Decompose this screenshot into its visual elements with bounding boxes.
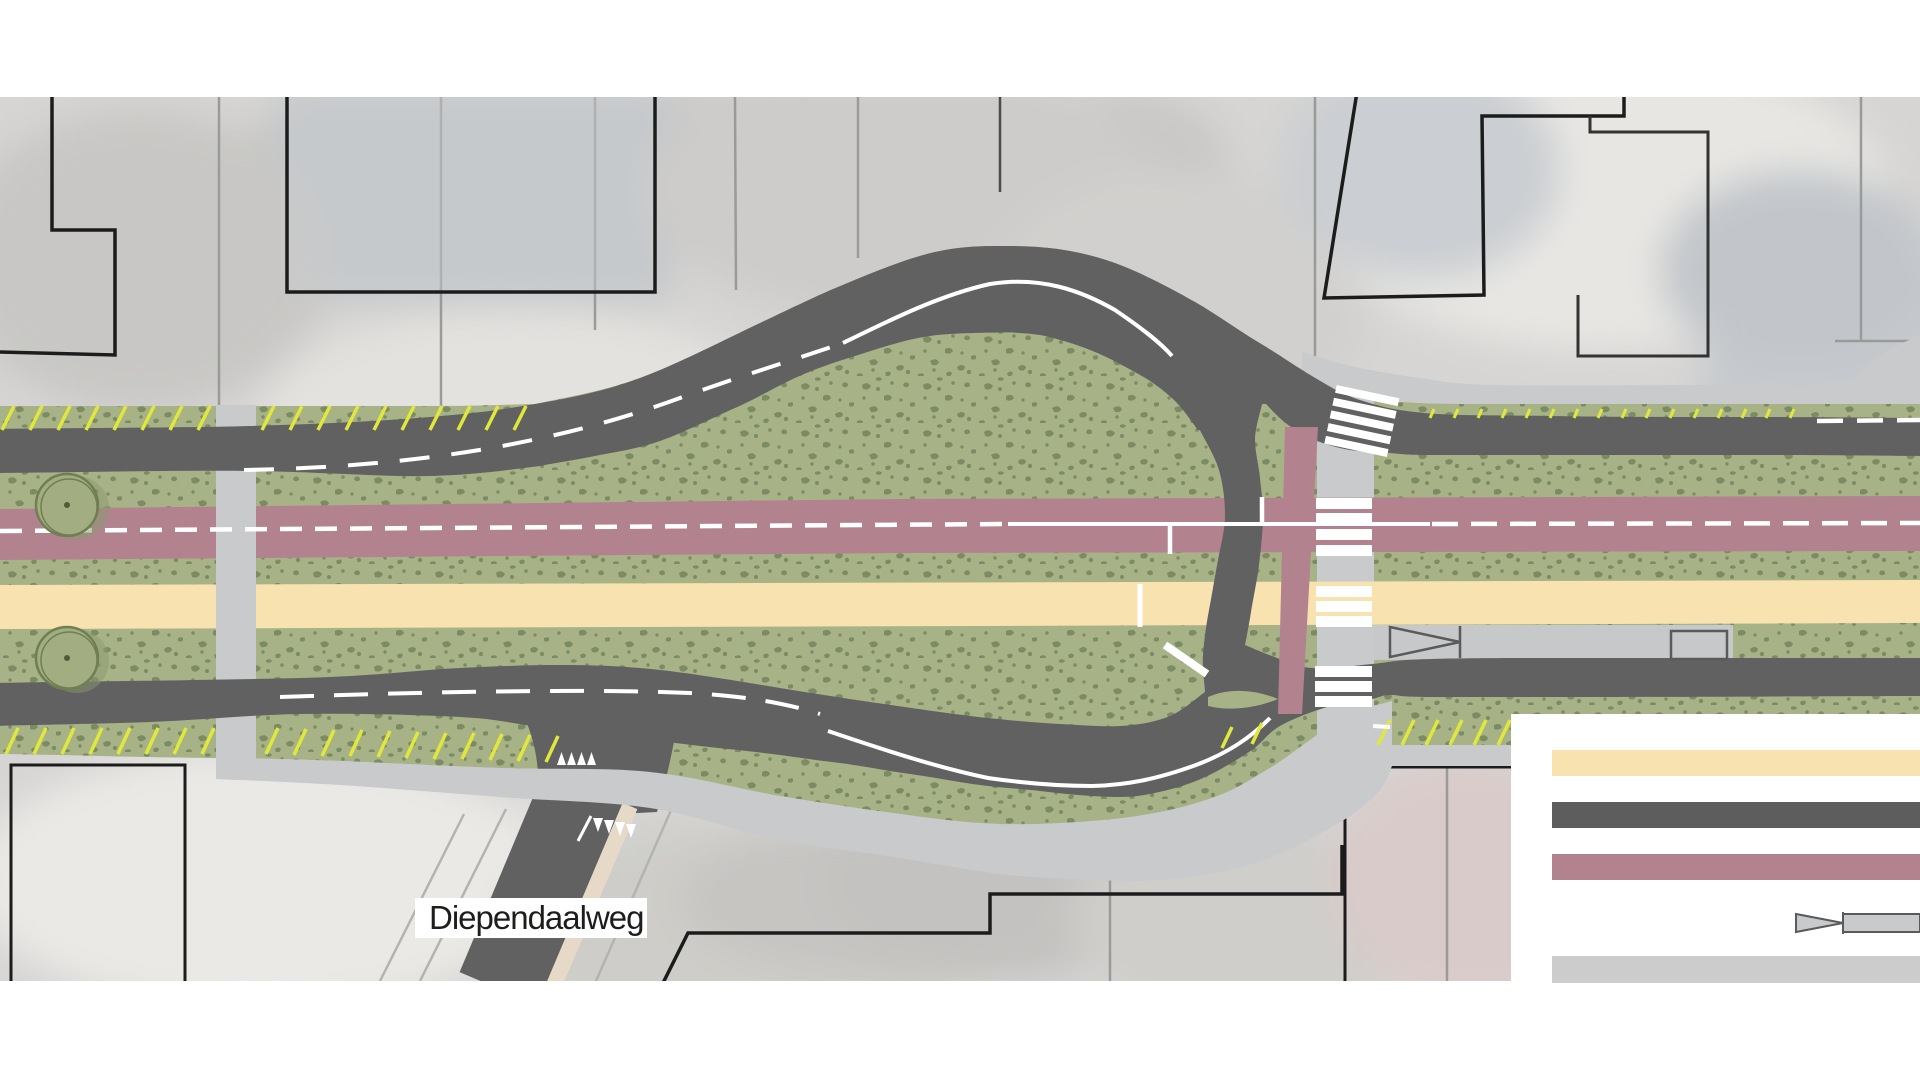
- svg-text:Diependaalweg: Diependaalweg: [429, 899, 644, 936]
